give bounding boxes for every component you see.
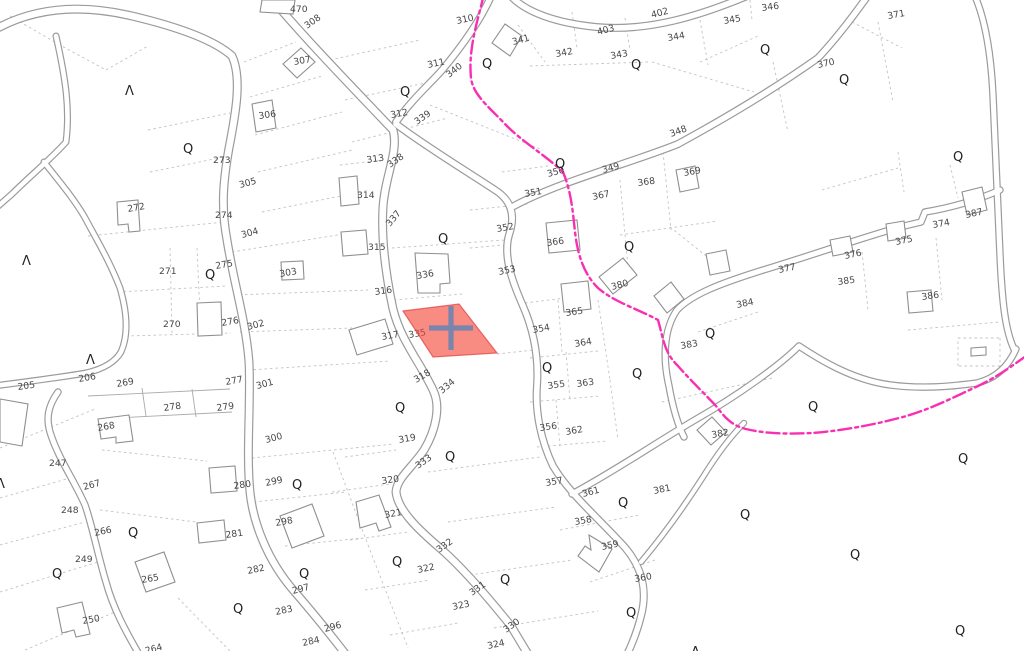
parcel-number-label: 470 bbox=[290, 4, 308, 15]
parcel-number-label: 247 bbox=[49, 458, 67, 469]
q-map-symbol: Q bbox=[850, 548, 860, 563]
caret-map-symbol: Λ bbox=[691, 645, 700, 651]
q-map-symbol: Q bbox=[395, 401, 405, 416]
parcel-number-label: 249 bbox=[75, 554, 93, 565]
q-map-symbol: Q bbox=[618, 496, 628, 511]
q-map-symbol: Q bbox=[542, 361, 552, 376]
building-footprint bbox=[197, 302, 222, 336]
map-canvas[interactable]: 4703083073063103113403123393133383143373… bbox=[0, 0, 1024, 651]
q-map-symbol: Q bbox=[705, 327, 715, 342]
q-map-symbol: Q bbox=[632, 367, 642, 382]
q-map-symbol: Q bbox=[205, 268, 215, 283]
map-background bbox=[0, 0, 1024, 651]
q-map-symbol: Q bbox=[482, 57, 492, 72]
q-map-symbol: Q bbox=[500, 573, 510, 588]
q-map-symbol: Q bbox=[299, 567, 309, 582]
building-footprint bbox=[341, 230, 368, 256]
q-map-symbol: Q bbox=[808, 400, 818, 415]
parcel-number-label: 248 bbox=[61, 505, 79, 516]
caret-map-symbol: Λ bbox=[0, 477, 5, 492]
q-map-symbol: Q bbox=[953, 150, 963, 165]
caret-map-symbol: Λ bbox=[22, 254, 31, 269]
parcel-number-label: 271 bbox=[159, 266, 177, 277]
cadastral-map-viewport[interactable]: 4703083073063103113403123393133383143373… bbox=[0, 0, 1024, 651]
q-map-symbol: Q bbox=[233, 602, 243, 617]
q-map-symbol: Q bbox=[400, 85, 410, 100]
parcel-number-label: 314 bbox=[357, 190, 375, 201]
parcel-number-label: 270 bbox=[163, 319, 181, 330]
q-map-symbol: Q bbox=[958, 452, 968, 467]
q-map-symbol: Q bbox=[955, 624, 965, 639]
q-map-symbol: Q bbox=[438, 232, 448, 247]
q-map-symbol: Q bbox=[445, 450, 455, 465]
caret-map-symbol: Λ bbox=[86, 353, 95, 368]
q-map-symbol: Q bbox=[183, 142, 193, 157]
q-map-symbol: Q bbox=[624, 240, 634, 255]
q-map-symbol: Q bbox=[626, 606, 636, 621]
q-map-symbol: Q bbox=[760, 43, 770, 58]
caret-map-symbol: Λ bbox=[125, 84, 134, 99]
q-map-symbol: Q bbox=[839, 73, 849, 88]
building-footprint bbox=[197, 520, 226, 543]
building-footprint bbox=[209, 466, 237, 493]
parcel-number-label: 274 bbox=[215, 210, 233, 221]
building-footprint bbox=[339, 176, 359, 206]
q-map-symbol: Q bbox=[631, 58, 641, 73]
q-map-symbol: Q bbox=[52, 567, 62, 582]
q-map-symbol: Q bbox=[555, 157, 565, 172]
q-map-symbol: Q bbox=[128, 526, 138, 541]
q-map-symbol: Q bbox=[292, 478, 302, 493]
parcel-number-label: 315 bbox=[368, 242, 386, 253]
building-footprint bbox=[706, 250, 730, 275]
q-map-symbol: Q bbox=[392, 555, 402, 570]
q-map-symbol: Q bbox=[740, 508, 750, 523]
parcel-number-label: 273 bbox=[213, 155, 231, 166]
building-footprint bbox=[971, 347, 986, 356]
